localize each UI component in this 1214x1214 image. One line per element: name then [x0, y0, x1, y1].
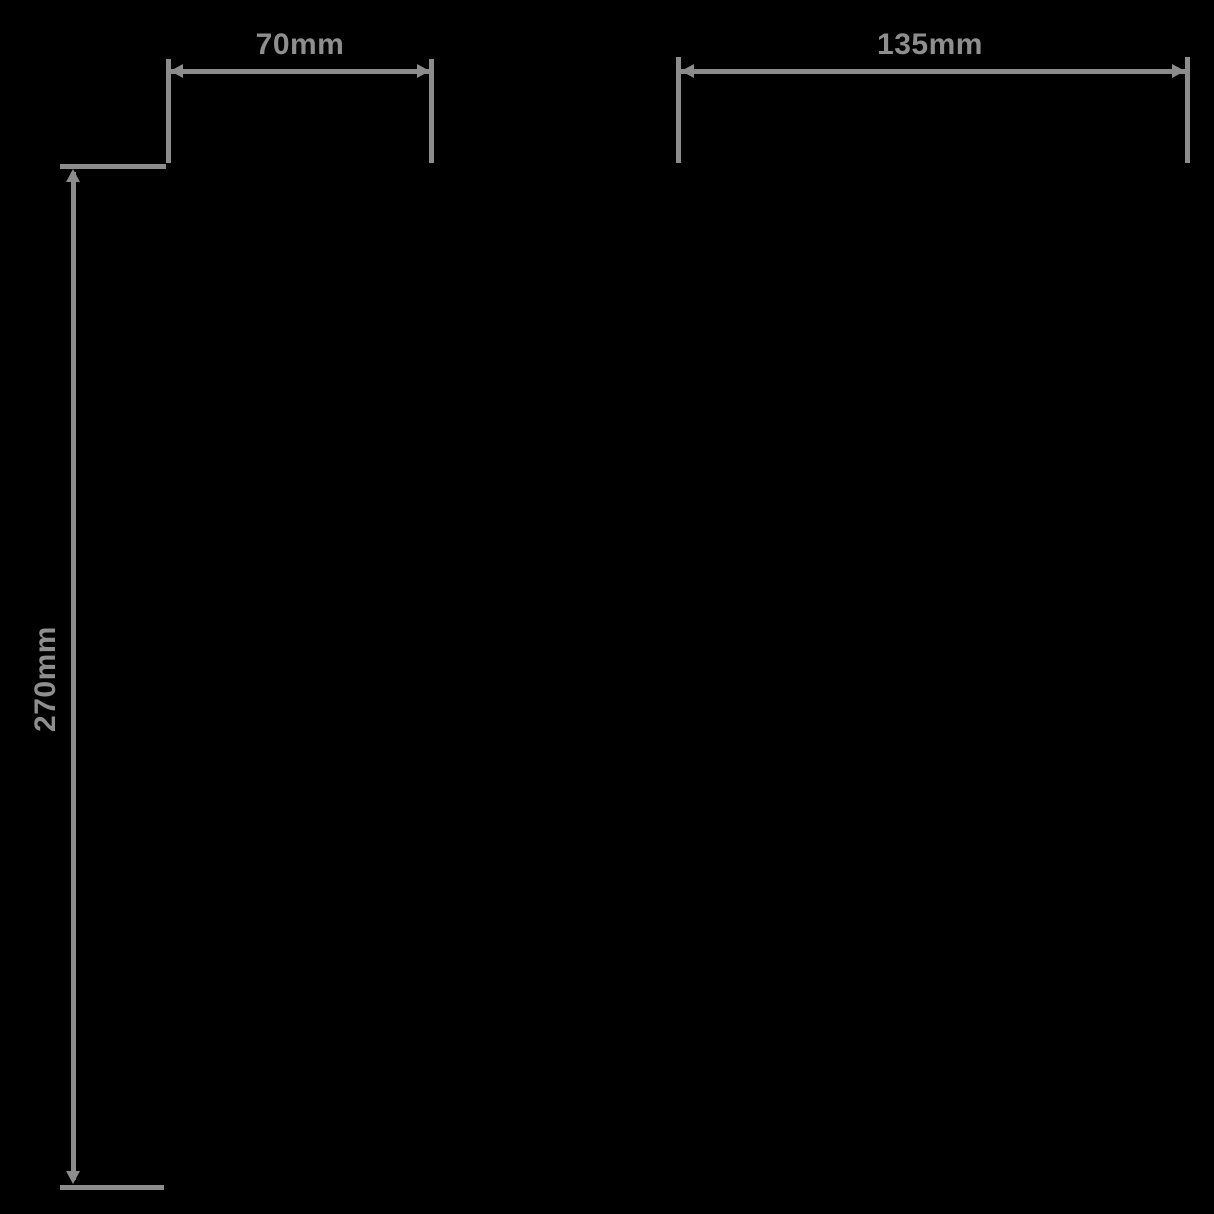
extension-line-right-70mm — [429, 59, 434, 163]
extension-line-bottom-270mm — [60, 1185, 164, 1190]
arrowhead-down-icon — [66, 1171, 80, 1184]
extension-line-left-70mm — [166, 59, 171, 163]
extension-line-left-135mm — [676, 57, 681, 163]
dimension-diagram: 70mm 135mm 270mm — [0, 0, 1214, 1214]
dimension-line-135mm — [679, 69, 1187, 74]
extension-line-top-270mm — [60, 164, 166, 169]
dimension-line-270mm — [71, 172, 76, 1180]
arrowhead-left-icon — [170, 64, 183, 78]
extension-line-right-135mm — [1185, 57, 1190, 163]
arrowhead-right-icon — [1172, 64, 1185, 78]
arrowhead-left-icon — [681, 64, 694, 78]
dimension-line-70mm — [168, 69, 432, 74]
dimension-label-70mm: 70mm — [220, 28, 380, 62]
arrowhead-up-icon — [66, 169, 80, 182]
dimension-label-135mm: 135mm — [850, 28, 1010, 62]
dimension-label-270mm: 270mm — [29, 599, 63, 759]
